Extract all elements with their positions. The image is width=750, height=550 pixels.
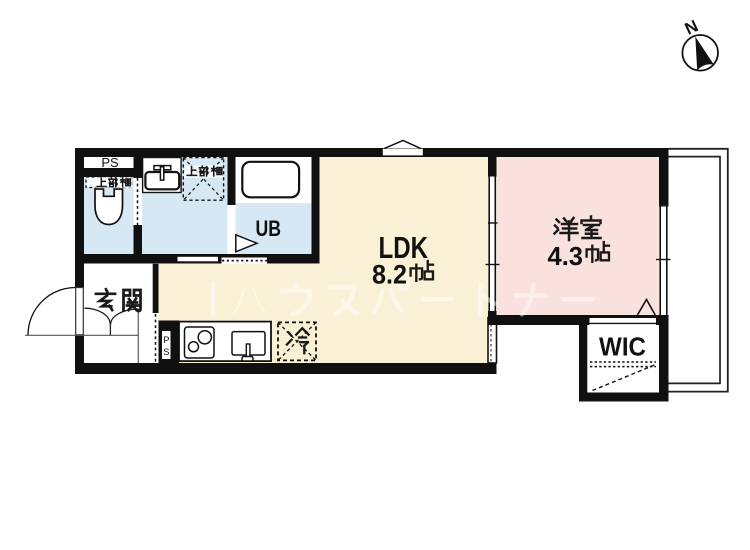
- svg-text:4.3: 4.3: [548, 241, 584, 271]
- svg-text:UB: UB: [256, 216, 282, 241]
- svg-text:8.2: 8.2: [372, 260, 407, 290]
- svg-text:S: S: [163, 347, 169, 358]
- svg-text:P: P: [163, 335, 169, 346]
- svg-text:PS: PS: [101, 155, 119, 170]
- svg-text:WIC: WIC: [599, 332, 646, 362]
